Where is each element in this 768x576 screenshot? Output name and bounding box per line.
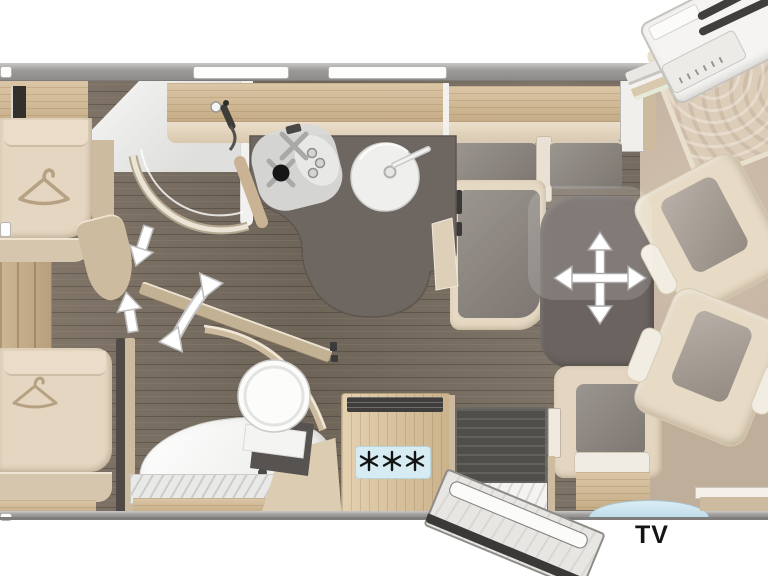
window-slot (328, 66, 447, 79)
entry-pillar (548, 408, 561, 458)
entry-wall-strip (548, 456, 555, 512)
entry-step-mat (455, 407, 547, 485)
fridge-vent (347, 397, 443, 412)
bed-rear-left-pillow (4, 120, 88, 147)
partition-hinge-2 (331, 355, 338, 362)
rear-shelf-wood (700, 497, 768, 511)
rv-floorplan: TV (0, 0, 768, 576)
fridge-freezer-panel (355, 446, 431, 479)
table-ghost-position (528, 186, 652, 300)
window-slot-left-edge (0, 222, 11, 237)
seatbelt-bracket (456, 190, 462, 214)
bed-front-left-base (0, 472, 112, 502)
overhead-cabinet-1 (167, 83, 443, 121)
partition-hinge (330, 342, 337, 351)
tv-label: TV (612, 521, 692, 550)
side-bench-seat-top (574, 452, 650, 474)
bathroom-wall-dark (116, 338, 125, 512)
seatbelt-bracket-2 (456, 222, 462, 236)
window-slot (0, 66, 12, 78)
bed-front-left-pillow (4, 351, 106, 376)
dinette-backrest-cab (550, 140, 622, 189)
overhead-cabinet-2 (449, 86, 622, 121)
shower-wall-left (92, 140, 114, 222)
bed-steps (0, 262, 52, 348)
overhead-cabinet-1-front (167, 121, 443, 143)
bottom-wall-line (0, 517, 768, 520)
window-slot (193, 66, 289, 79)
